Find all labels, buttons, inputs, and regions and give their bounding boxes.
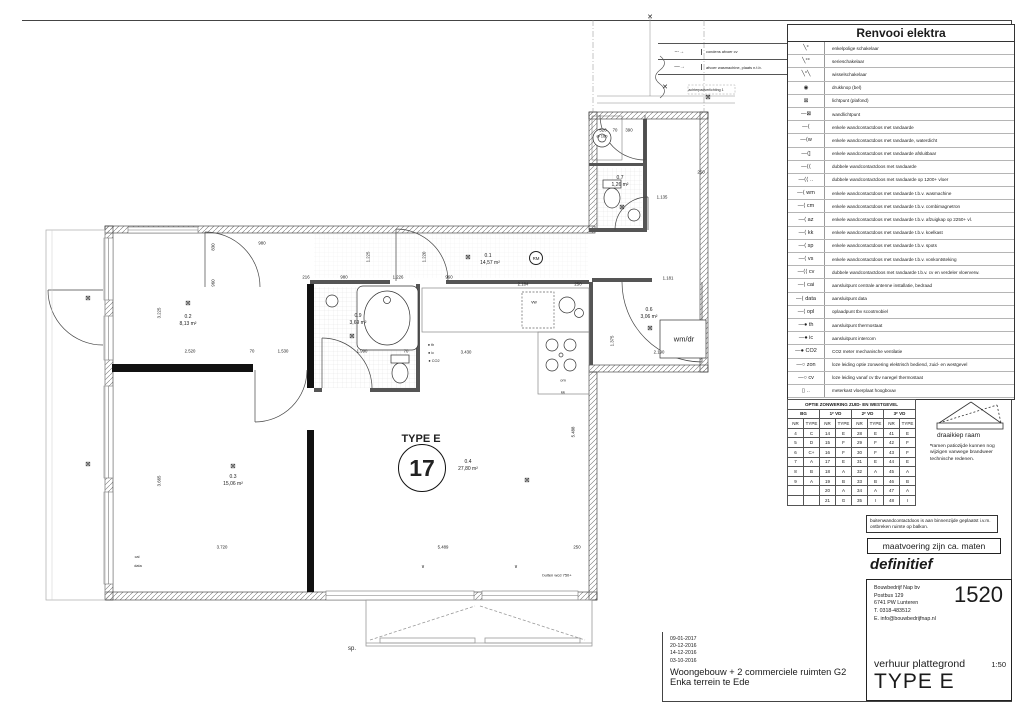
legend-label: drukknop (bel) — [825, 85, 861, 90]
plan-label: ⊠ — [524, 476, 529, 484]
legend-row: ╲°╲wisselschakelaar — [788, 68, 1014, 81]
legend-row: —⟨]enkele wandcontactdoos met randaarde … — [788, 148, 1014, 161]
zonwering-row: 5D15F29F42F — [788, 438, 916, 448]
plan-label: 216 — [302, 275, 309, 280]
legend-label: dubbele wandcontactdoos met randaarde op… — [825, 177, 948, 182]
legend-label: lichtpunt (plafond) — [825, 98, 869, 103]
plan-label: ∨ — [421, 564, 425, 570]
zonwering-cell: A — [900, 486, 916, 496]
legend-label: enkele wandcontactdoos met randaarde t.b… — [825, 230, 943, 235]
legend-row: —○ cvloze leiding vanaf cv tbv naregel t… — [788, 372, 1014, 385]
legend-label: enkele wandcontactdoos met randaarde t.b… — [825, 243, 937, 248]
zonwering-cell: C+ — [804, 447, 820, 457]
zonwering-row: 21G35I48I — [788, 495, 916, 505]
legend-label: enkele wandcontactdoos met randaarde t.b… — [825, 191, 951, 196]
legend-label: loze leiding vanaf cv tbv naregel thermo… — [825, 375, 923, 380]
zonwering-row: NRTYPENRTYPENRTYPENRTYPE — [788, 419, 916, 429]
zonwering-cell: F — [836, 438, 852, 448]
zonwering-row: 4C14E28E41E — [788, 428, 916, 438]
zonwering-cell: A — [868, 486, 884, 496]
legend-label: wandlichtpunt — [825, 112, 860, 117]
plan-label: 1.135 — [657, 195, 668, 200]
legend-symbol: —⟨ az — [788, 213, 825, 225]
plan-label: 14,57 m² — [480, 260, 500, 266]
zonwering-panel: OPTIE ZONWERING ZUID- EN WESTGEVELBG1ᵉ V… — [787, 399, 916, 506]
legend-symbol: ╲°╲ — [788, 68, 825, 80]
legend-symbol: —⟨ sp — [788, 240, 825, 252]
zonwering-cell: NR — [820, 419, 836, 429]
zonwering-cell: 46 — [884, 476, 900, 486]
zonwering-cell: 35 — [852, 495, 868, 505]
legend-row: —⟨ spenkele wandcontactdoos met randaard… — [788, 240, 1014, 253]
legend-row: —⟨ dataaansluitpunt data — [788, 293, 1014, 306]
plan-label: 0.9 — [355, 313, 362, 319]
zonwering-cell: 31 — [852, 457, 868, 467]
zonwering-row: 20A34A47A — [788, 486, 916, 496]
legend-row: —⟨ vsenkele wandcontactdoos met randaard… — [788, 253, 1014, 266]
zonwering-cell: 8 — [788, 467, 804, 477]
zonwering-row: OPTIE ZONWERING ZUID- EN WESTGEVEL — [788, 400, 916, 410]
legend-symbol: —⟨⟨ ‥ — [788, 174, 825, 186]
zonwering-cell: F — [836, 447, 852, 457]
zonwering-cell: E — [868, 457, 884, 467]
zonwering-cell: 1ᵉ VD — [820, 409, 852, 419]
plan-label: buiten wcd 750+ — [542, 573, 571, 578]
zonwering-cell: B — [868, 476, 884, 486]
zonwering-cell: C — [804, 428, 820, 438]
legend-label: enkele wandcontactdoos met randaarde t.b… — [825, 257, 957, 262]
plan-label: ⊠ — [647, 324, 652, 332]
legend-symbol: —⟨⟨ — [788, 161, 825, 173]
zonwering-row: BG1ᵉ VD2ᵉ VD3ᵉ VD — [788, 409, 916, 419]
legend-label: loze leiding optie zonwering elektrisch … — [825, 362, 967, 367]
type-label: TYPE E — [874, 670, 955, 694]
zonwering-cell: 5 — [788, 438, 804, 448]
legend-symbol: ╲° — [788, 42, 825, 54]
project-number: 1520 — [954, 582, 1003, 608]
legend-symbol: —⟨ cm — [788, 200, 825, 212]
company-line: E. info@bouwbedrijfnap.nl — [874, 616, 936, 624]
zonwering-cell: 21 — [820, 495, 836, 505]
plan-label: 8,13 m² — [180, 321, 197, 327]
zonwering-cell: B — [836, 476, 852, 486]
zonwering-cell: TYPE — [900, 419, 916, 429]
plan-label: 1.220 — [422, 252, 427, 263]
zonwering-cell: 14 — [820, 428, 836, 438]
drain-label: afvoer wasmachine, plaats n.t.b. — [702, 65, 762, 70]
plan-label: 70 — [250, 349, 255, 354]
legend-symbol: ╲°° — [788, 55, 825, 67]
legend-row: —⟨wenkele wandcontactdoos met randaarde,… — [788, 134, 1014, 147]
zonwering-cell: 3ᵉ VD — [884, 409, 916, 419]
zonwering-cell: A — [900, 467, 916, 477]
zonwering-cell — [804, 486, 820, 496]
plan-label: 2.520 — [185, 349, 196, 354]
legend-symbol: —⟨ — [788, 121, 825, 133]
legend-rows: ╲°enkelpolige schakelaar╲°°serieschakela… — [788, 42, 1014, 398]
zonwering-cell: A — [868, 467, 884, 477]
legend-row: —⟨ caiaansluitpunt centrale antenne inst… — [788, 279, 1014, 292]
plan-label: ● CO2 — [428, 359, 439, 363]
plan-label: om — [560, 378, 566, 383]
legend-symbol: ◉ — [788, 82, 825, 94]
revision-date: 03-10-2016 — [670, 658, 860, 665]
plan-label: ⊠ — [230, 462, 235, 470]
doc-row: verhuur plattegrond 1:50 — [874, 658, 1006, 670]
legend-label: serieschakelaar — [825, 59, 864, 64]
legend-label: dubbele wandcontactdoos met randaarde — [825, 164, 917, 169]
legend-label: wisselschakelaar — [825, 72, 867, 77]
legend-label: meterkast vloerplaat hoogbouw — [825, 388, 896, 393]
plan-label: 5.489 — [438, 545, 449, 550]
legend-label: aansluitpunt data — [825, 296, 867, 301]
plan-label: 1.225 — [366, 252, 371, 263]
legend-symbol: ⊠ — [788, 95, 825, 107]
zonwering-cell: TYPE — [868, 419, 884, 429]
plan-label: kk — [561, 390, 565, 395]
zonwering-cell: 41 — [884, 428, 900, 438]
zonwering-cell: OPTIE ZONWERING ZUID- EN WESTGEVEL — [788, 400, 916, 410]
company-block: Bouwbedrijf Nap bvPostbus 1296741 PW Lun… — [874, 585, 936, 623]
zonwering-table: OPTIE ZONWERING ZUID- EN WESTGEVELBG1ᵉ V… — [787, 399, 916, 506]
legend-label: oplaadpunt tbv scootmobiel — [825, 309, 888, 314]
plan-label: ⊠ — [85, 294, 90, 302]
legend-label: aansluitpunt centrale antenne installati… — [825, 283, 932, 288]
zonwering-cell: 2ᵉ VD — [852, 409, 884, 419]
plan-label: 1.226 — [393, 275, 404, 280]
zonwering-cell: E — [900, 457, 916, 467]
legend-row: ╲°enkelpolige schakelaar — [788, 42, 1014, 55]
revision-date: 09-01-2017 — [670, 636, 860, 643]
legend-symbol: —⟨ cai — [788, 279, 825, 291]
plan-label: 0.2 — [185, 314, 192, 320]
legend-symbol: —○ zon — [788, 359, 825, 371]
plan-label: ⊠ — [185, 299, 190, 307]
company-line: Bouwbedrijf Nap bv — [874, 585, 936, 593]
revision-date: 20-12-2016 — [670, 643, 860, 650]
zonwering-cell: F — [868, 447, 884, 457]
zonwering-cell: 7 — [788, 457, 804, 467]
project-name: Woongebouw + 2 commerciele ruimten G2 — [670, 667, 860, 677]
legend-row: ⊠lichtpunt (plafond) — [788, 95, 1014, 108]
revision-date: 14-12-2016 — [670, 650, 860, 657]
plan-label: 3.720 — [217, 545, 228, 550]
legend-row: ╲°°serieschakelaar — [788, 55, 1014, 68]
plan-label: ⊠ — [85, 460, 90, 468]
zonwering-cell: 32 — [852, 467, 868, 477]
legend-row: —⟨ azenkele wandcontactdoos met randaard… — [788, 213, 1014, 226]
company-line: 6741 PW Lunteren — [874, 600, 936, 608]
zonwering-cell: NR — [788, 419, 804, 429]
plan-label: wm/dr — [674, 335, 694, 344]
doc-type: verhuur plattegrond — [874, 658, 965, 670]
legend-label: enkele wandcontactdoos met randaarde t.b… — [825, 217, 972, 222]
plan-label: RM — [529, 251, 543, 265]
zonwering-cell: 19 — [820, 476, 836, 486]
zonwering-cell: NR — [884, 419, 900, 429]
zonwering-cell: D — [804, 438, 820, 448]
legend-row: —● CO2CO2 meter mechanische ventilatie — [788, 345, 1014, 358]
plan-label: vw — [531, 300, 537, 305]
drain-symbol: –·→ — [658, 49, 702, 55]
legend-row: —⟨ cmenkele wandcontactdoos met randaard… — [788, 200, 1014, 213]
zonwering-cell: 43 — [884, 447, 900, 457]
legend-row: ◉drukknop (bel) — [788, 82, 1014, 95]
zonwering-cell: E — [900, 428, 916, 438]
plan-label: 1.181 — [663, 276, 674, 281]
zonwering-cell: 6 — [788, 447, 804, 457]
legend-label: aansluitpunt thermostaat — [825, 323, 882, 328]
drain-legend: –·→condens afvoer cv––→afvoer wasmachine… — [658, 43, 789, 75]
legend-row: —⟨ kkenkele wandcontactdoos met randaard… — [788, 227, 1014, 240]
plan-label: 70 — [404, 349, 409, 354]
plan-label: 17 — [398, 444, 446, 492]
zonwering-cell: 47 — [884, 486, 900, 496]
plan-label: 830 — [211, 243, 216, 250]
legend-symbol: —⟨ kk — [788, 227, 825, 239]
zonwering-row: 9A19B33B46B — [788, 476, 916, 486]
plan-label: 3,69 m² — [350, 320, 367, 326]
legend-symbol: —⊠ — [788, 108, 825, 120]
plan-label: 960 — [211, 279, 216, 286]
zonwering-cell: F — [900, 447, 916, 457]
legend-symbol: —⟨ data — [788, 293, 825, 305]
legend-symbol: —⟨⟨ cv — [788, 266, 825, 278]
zonwering-cell: I — [900, 495, 916, 505]
drain-legend-row: ––→afvoer wasmachine, plaats n.t.b. — [658, 59, 789, 74]
legend-row: —○ zonloze leiding optie zonwering elekt… — [788, 359, 1014, 372]
draaikiep-raam-label: draaikiep raam — [937, 432, 980, 439]
zonwering-cell: A — [836, 486, 852, 496]
plan-label: Ø 160 — [597, 134, 608, 139]
legend-label: enkele wandcontactdoos met randaarde, wa… — [825, 138, 937, 143]
plan-label: ✕ — [647, 13, 653, 21]
legend-row: —● thaansluitpunt thermostaat — [788, 319, 1014, 332]
legend-symbol: —⟨w — [788, 134, 825, 146]
zonwering-row: 7A17E31E44E — [788, 457, 916, 467]
legend-row: —⟨enkele wandcontactdoos met randaarde — [788, 121, 1014, 134]
legend-label: enkele wandcontactdoos met randaarde — [825, 125, 914, 130]
plan-label: 980 — [258, 241, 265, 246]
legend-row: —⟨ oploplaadpunt tbv scootmobiel — [788, 306, 1014, 319]
plan-label: 27,80 m² — [458, 466, 478, 472]
zonwering-row: 6C+16F30F43F — [788, 447, 916, 457]
drain-symbol: ––→ — [658, 64, 702, 70]
drain-legend-row: –·→condens afvoer cv — [658, 44, 789, 59]
plan-label: 15,06 m² — [223, 481, 243, 487]
plan-label: data — [134, 564, 141, 568]
plan-label: 250 — [697, 170, 704, 175]
drawing-sheet: { "sheet": { "status": "definitief", "no… — [0, 0, 1024, 724]
legend-symbol: ▯ ‥ — [788, 385, 825, 397]
plan-label: sp. — [348, 646, 356, 652]
zonwering-cell: 15 — [820, 438, 836, 448]
zonwering-cell: A — [836, 467, 852, 477]
zonwering-cell: 42 — [884, 438, 900, 448]
zonwering-cell: A — [804, 476, 820, 486]
drain-label: condens afvoer cv — [702, 49, 738, 54]
zonwering-cell: 16 — [820, 447, 836, 457]
zonwering-cell: A — [804, 457, 820, 467]
legend-label: dubbele wandcontactdoos met randaarde t.… — [825, 270, 980, 275]
plan-label: 3,06 m² — [641, 314, 658, 320]
plan-label: ● th — [428, 343, 435, 347]
zonwering-cell: TYPE — [804, 419, 820, 429]
legend-label: enkele wandcontactdoos met randaarde t.b… — [825, 204, 960, 209]
legend-symbol: —⟨ wm — [788, 187, 825, 199]
plan-label: 250 — [573, 545, 580, 550]
zonwering-cell: 48 — [884, 495, 900, 505]
legend-label: enkelpolige schakelaar — [825, 46, 879, 51]
zonwering-row: 8B18A32A45A — [788, 467, 916, 477]
plan-label: 0.7 — [617, 175, 624, 181]
company-line: T. 0318-483512 — [874, 608, 936, 616]
zonwering-cell: E — [836, 428, 852, 438]
plan-label: 3.430 — [461, 350, 472, 355]
legend-row: —⟨ wmenkele wandcontactdoos met randaard… — [788, 187, 1014, 200]
plan-label: 0.6 — [646, 307, 653, 313]
note-balkon: buitenwandcontactdoos is aan binnenzijde… — [866, 515, 998, 533]
company-line: Postbus 129 — [874, 593, 936, 601]
zonwering-cell: B — [900, 476, 916, 486]
zonwering-cell: 28 — [852, 428, 868, 438]
zonwering-cell: B — [804, 467, 820, 477]
legend-symbol: —● ic — [788, 332, 825, 344]
plan-label: 3.225 — [157, 308, 162, 319]
plan-label: 0.3 — [230, 474, 237, 480]
zonwering-cell: 17 — [820, 457, 836, 467]
zonwering-cell: F — [900, 438, 916, 448]
zonwering-cell: I — [868, 495, 884, 505]
plan-label: 2.190 — [654, 350, 665, 355]
plan-label: ⊠ — [705, 93, 710, 101]
project-location: Enka terrein te Ede — [670, 677, 860, 687]
legend-symbol: —○ cv — [788, 372, 825, 384]
legend-symbol: —⟨] — [788, 148, 825, 160]
plan-label: ⊠ — [465, 253, 470, 261]
zonwering-cell: TYPE — [836, 419, 852, 429]
plan-label: 0.1 — [485, 253, 492, 259]
plan-label: ⊠ — [349, 332, 354, 340]
legend-symbol: —● th — [788, 319, 825, 331]
project-block: 09-01-201720-12-201614-12-201603-10-2016… — [670, 636, 860, 687]
zonwering-cell: 18 — [820, 467, 836, 477]
plan-label: 250 — [574, 282, 581, 287]
zonwering-cell — [804, 495, 820, 505]
zonwering-cell: NR — [852, 419, 868, 429]
note-maatvoering: maatvoering zijn ca. maten — [867, 538, 1001, 554]
status-definitief: definitief — [870, 556, 933, 573]
plan-label: 980 — [340, 275, 347, 280]
legend-label: CO2 meter mechanische ventilatie — [825, 349, 902, 354]
legend-row: —⟨⟨ cvdubbele wandcontactdoos met randaa… — [788, 266, 1014, 279]
legend-label: aansluitpunt intercom — [825, 336, 876, 341]
plan-label: 520 — [599, 128, 606, 133]
zonwering-cell — [788, 486, 804, 496]
plan-label: 1,26 m² — [612, 182, 629, 188]
legend-label: enkele wandcontactdoos met randaarde afs… — [825, 151, 936, 156]
zonwering-cell: 29 — [852, 438, 868, 448]
zonwering-cell: 33 — [852, 476, 868, 486]
zonwering-cell: E — [868, 428, 884, 438]
plan-label: 1.375 — [610, 336, 615, 347]
plan-label: ● ic — [428, 351, 434, 355]
plan-label: 3.665 — [157, 476, 162, 487]
plan-label: cai — [135, 555, 140, 559]
zonwering-cell: 4 — [788, 428, 804, 438]
legend-row: —● icaansluitpunt intercom — [788, 332, 1014, 345]
plan-label: ⊠ — [619, 203, 624, 211]
plan-label: 5.488 — [571, 427, 576, 438]
legend-row: —⟨⟨dubbele wandcontactdoos met randaarde — [788, 161, 1014, 174]
legend-symbol: —⟨ vs — [788, 253, 825, 265]
plan-label: 390 — [625, 128, 632, 133]
zonwering-cell: 44 — [884, 457, 900, 467]
legend-row: ▯ ‥meterkast vloerplaat hoogbouw — [788, 385, 1014, 398]
legend-panel: Renvooi elektra ╲°enkelpolige schakelaar… — [787, 24, 1015, 400]
legend-row: —⟨⟨ ‥dubbele wandcontactdoos met randaar… — [788, 174, 1014, 187]
legend-row: —⊠wandlichtpunt — [788, 108, 1014, 121]
draaikiep-raam-icon — [935, 399, 1007, 431]
legend-symbol: —⟨ opl — [788, 306, 825, 318]
revision-dates: 09-01-201720-12-201614-12-201603-10-2016 — [670, 636, 860, 665]
legend-title: Renvooi elektra — [788, 25, 1014, 42]
plan-label: 960 — [445, 275, 452, 280]
zonwering-cell: G — [836, 495, 852, 505]
zonwering-cell: BG — [788, 409, 820, 419]
plan-label: ∨ — [514, 564, 518, 570]
zonwering-cell: E — [836, 457, 852, 467]
plan-label: achterpadverlichting 1 — [688, 88, 723, 92]
zonwering-cell: F — [868, 438, 884, 448]
note-text: ramen patiozijde kunnen nog wijzigen van… — [930, 444, 995, 462]
plan-label: 0.4 — [465, 459, 472, 465]
zonwering-note: *ramen patiozijde kunnen nog wijzigen va… — [930, 444, 1012, 463]
zonwering-cell — [788, 495, 804, 505]
plan-label: 2.184 — [518, 282, 529, 287]
zonwering-cell: 30 — [852, 447, 868, 457]
plan-label: ✕ — [662, 83, 668, 91]
doc-scale: 1:50 — [991, 660, 1006, 669]
title-block: Bouwbedrijf Nap bvPostbus 1296741 PW Lun… — [866, 579, 1012, 701]
zonwering-cell: 9 — [788, 476, 804, 486]
plan-label: 1.990 — [357, 349, 368, 354]
plan-label: 70 — [613, 128, 618, 133]
zonwering-cell: 34 — [852, 486, 868, 496]
legend-symbol: —● CO2 — [788, 345, 825, 357]
zonwering-cell: 20 — [820, 486, 836, 496]
zonwering-cell: 45 — [884, 467, 900, 477]
plan-label: 1.530 — [278, 349, 289, 354]
